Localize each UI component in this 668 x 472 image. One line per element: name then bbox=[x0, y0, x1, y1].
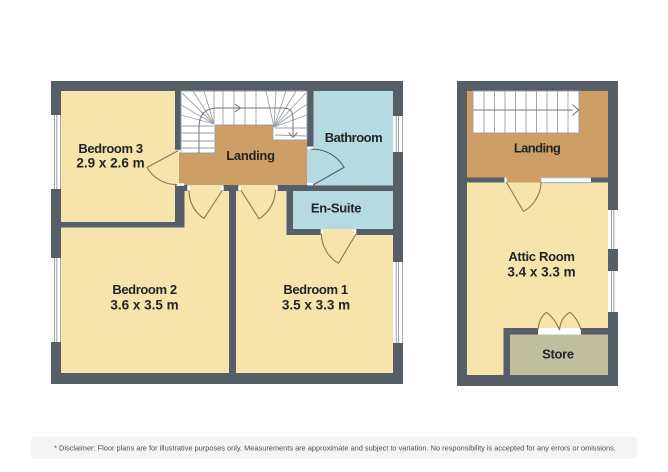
svg-text:3.4 x 3.3 m: 3.4 x 3.3 m bbox=[507, 265, 575, 280]
svg-text:Landing: Landing bbox=[514, 141, 561, 156]
svg-text:Bedroom 1: Bedroom 1 bbox=[283, 282, 347, 297]
svg-text:3.5 x 3.3 m: 3.5 x 3.3 m bbox=[282, 298, 350, 313]
svg-text:3.6 x 3.5 m: 3.6 x 3.5 m bbox=[110, 298, 178, 313]
svg-text:* Disclaimer: Floor plans are: * Disclaimer: Floor plans are for illust… bbox=[54, 444, 616, 453]
svg-text:Bathroom: Bathroom bbox=[325, 130, 382, 145]
svg-text:Bedroom 2: Bedroom 2 bbox=[112, 282, 176, 297]
svg-text:En-Suite: En-Suite bbox=[311, 200, 361, 215]
svg-text:Store: Store bbox=[542, 347, 574, 362]
svg-text:Bedroom 3: Bedroom 3 bbox=[78, 141, 142, 156]
svg-text:2.9 x 2.6 m: 2.9 x 2.6 m bbox=[76, 156, 144, 171]
svg-text:Landing: Landing bbox=[226, 148, 275, 163]
svg-text:Attic Room: Attic Room bbox=[508, 249, 574, 264]
